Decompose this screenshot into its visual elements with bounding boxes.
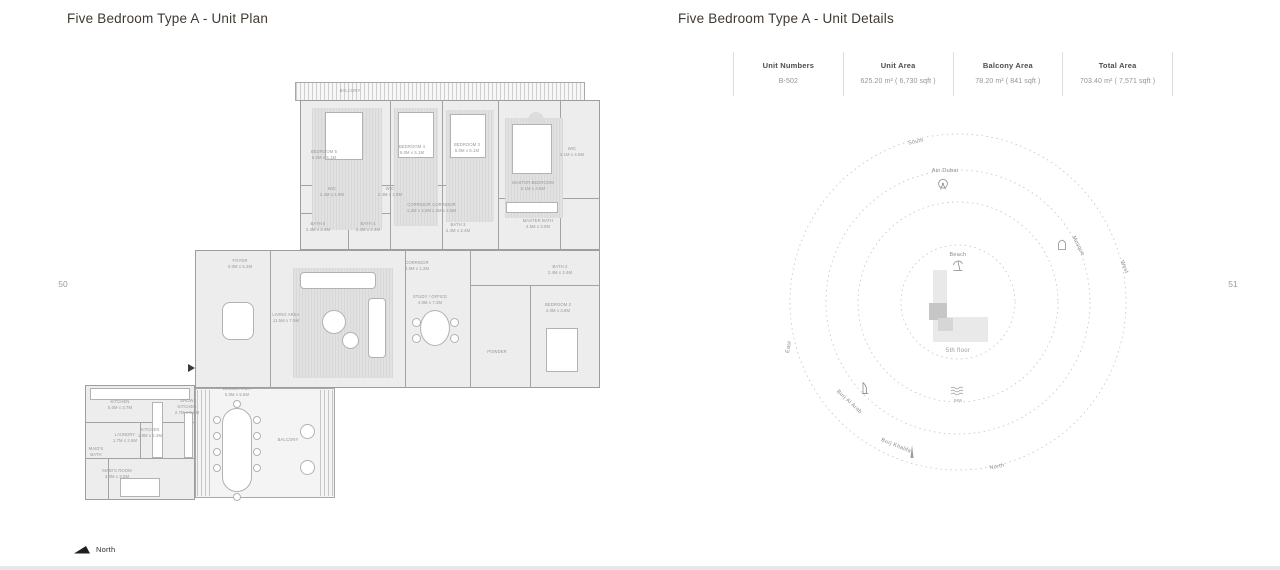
compass-label-sea: sea [954, 398, 962, 403]
north-indicator: North [74, 545, 115, 554]
compass-rings [778, 122, 1138, 482]
mosque-icon [1057, 240, 1068, 251]
burj-al-arab-icon [860, 382, 870, 395]
compass-label-5th-floor: 5th floor [946, 348, 970, 354]
brochure-page: Five Bedroom Type A - Unit Plan Five Bed… [0, 0, 1280, 570]
compass-label-ain-dubai: Ain Dubai [932, 168, 959, 174]
page-bottom-edge [0, 566, 1280, 570]
location-compass: SouthAin DubaiMosqueWestEastBurj Al Arab… [0, 0, 1280, 570]
north-arrow-icon [74, 546, 90, 554]
compass-label-beach: Beach [949, 252, 966, 258]
north-label: North [96, 545, 115, 554]
beach-umbrella-icon [952, 261, 965, 272]
burj-khalifa-icon [908, 445, 917, 459]
unit-highlight-step [938, 318, 953, 331]
sea-waves-icon [950, 386, 966, 396]
ferris-wheel-icon [937, 179, 950, 192]
